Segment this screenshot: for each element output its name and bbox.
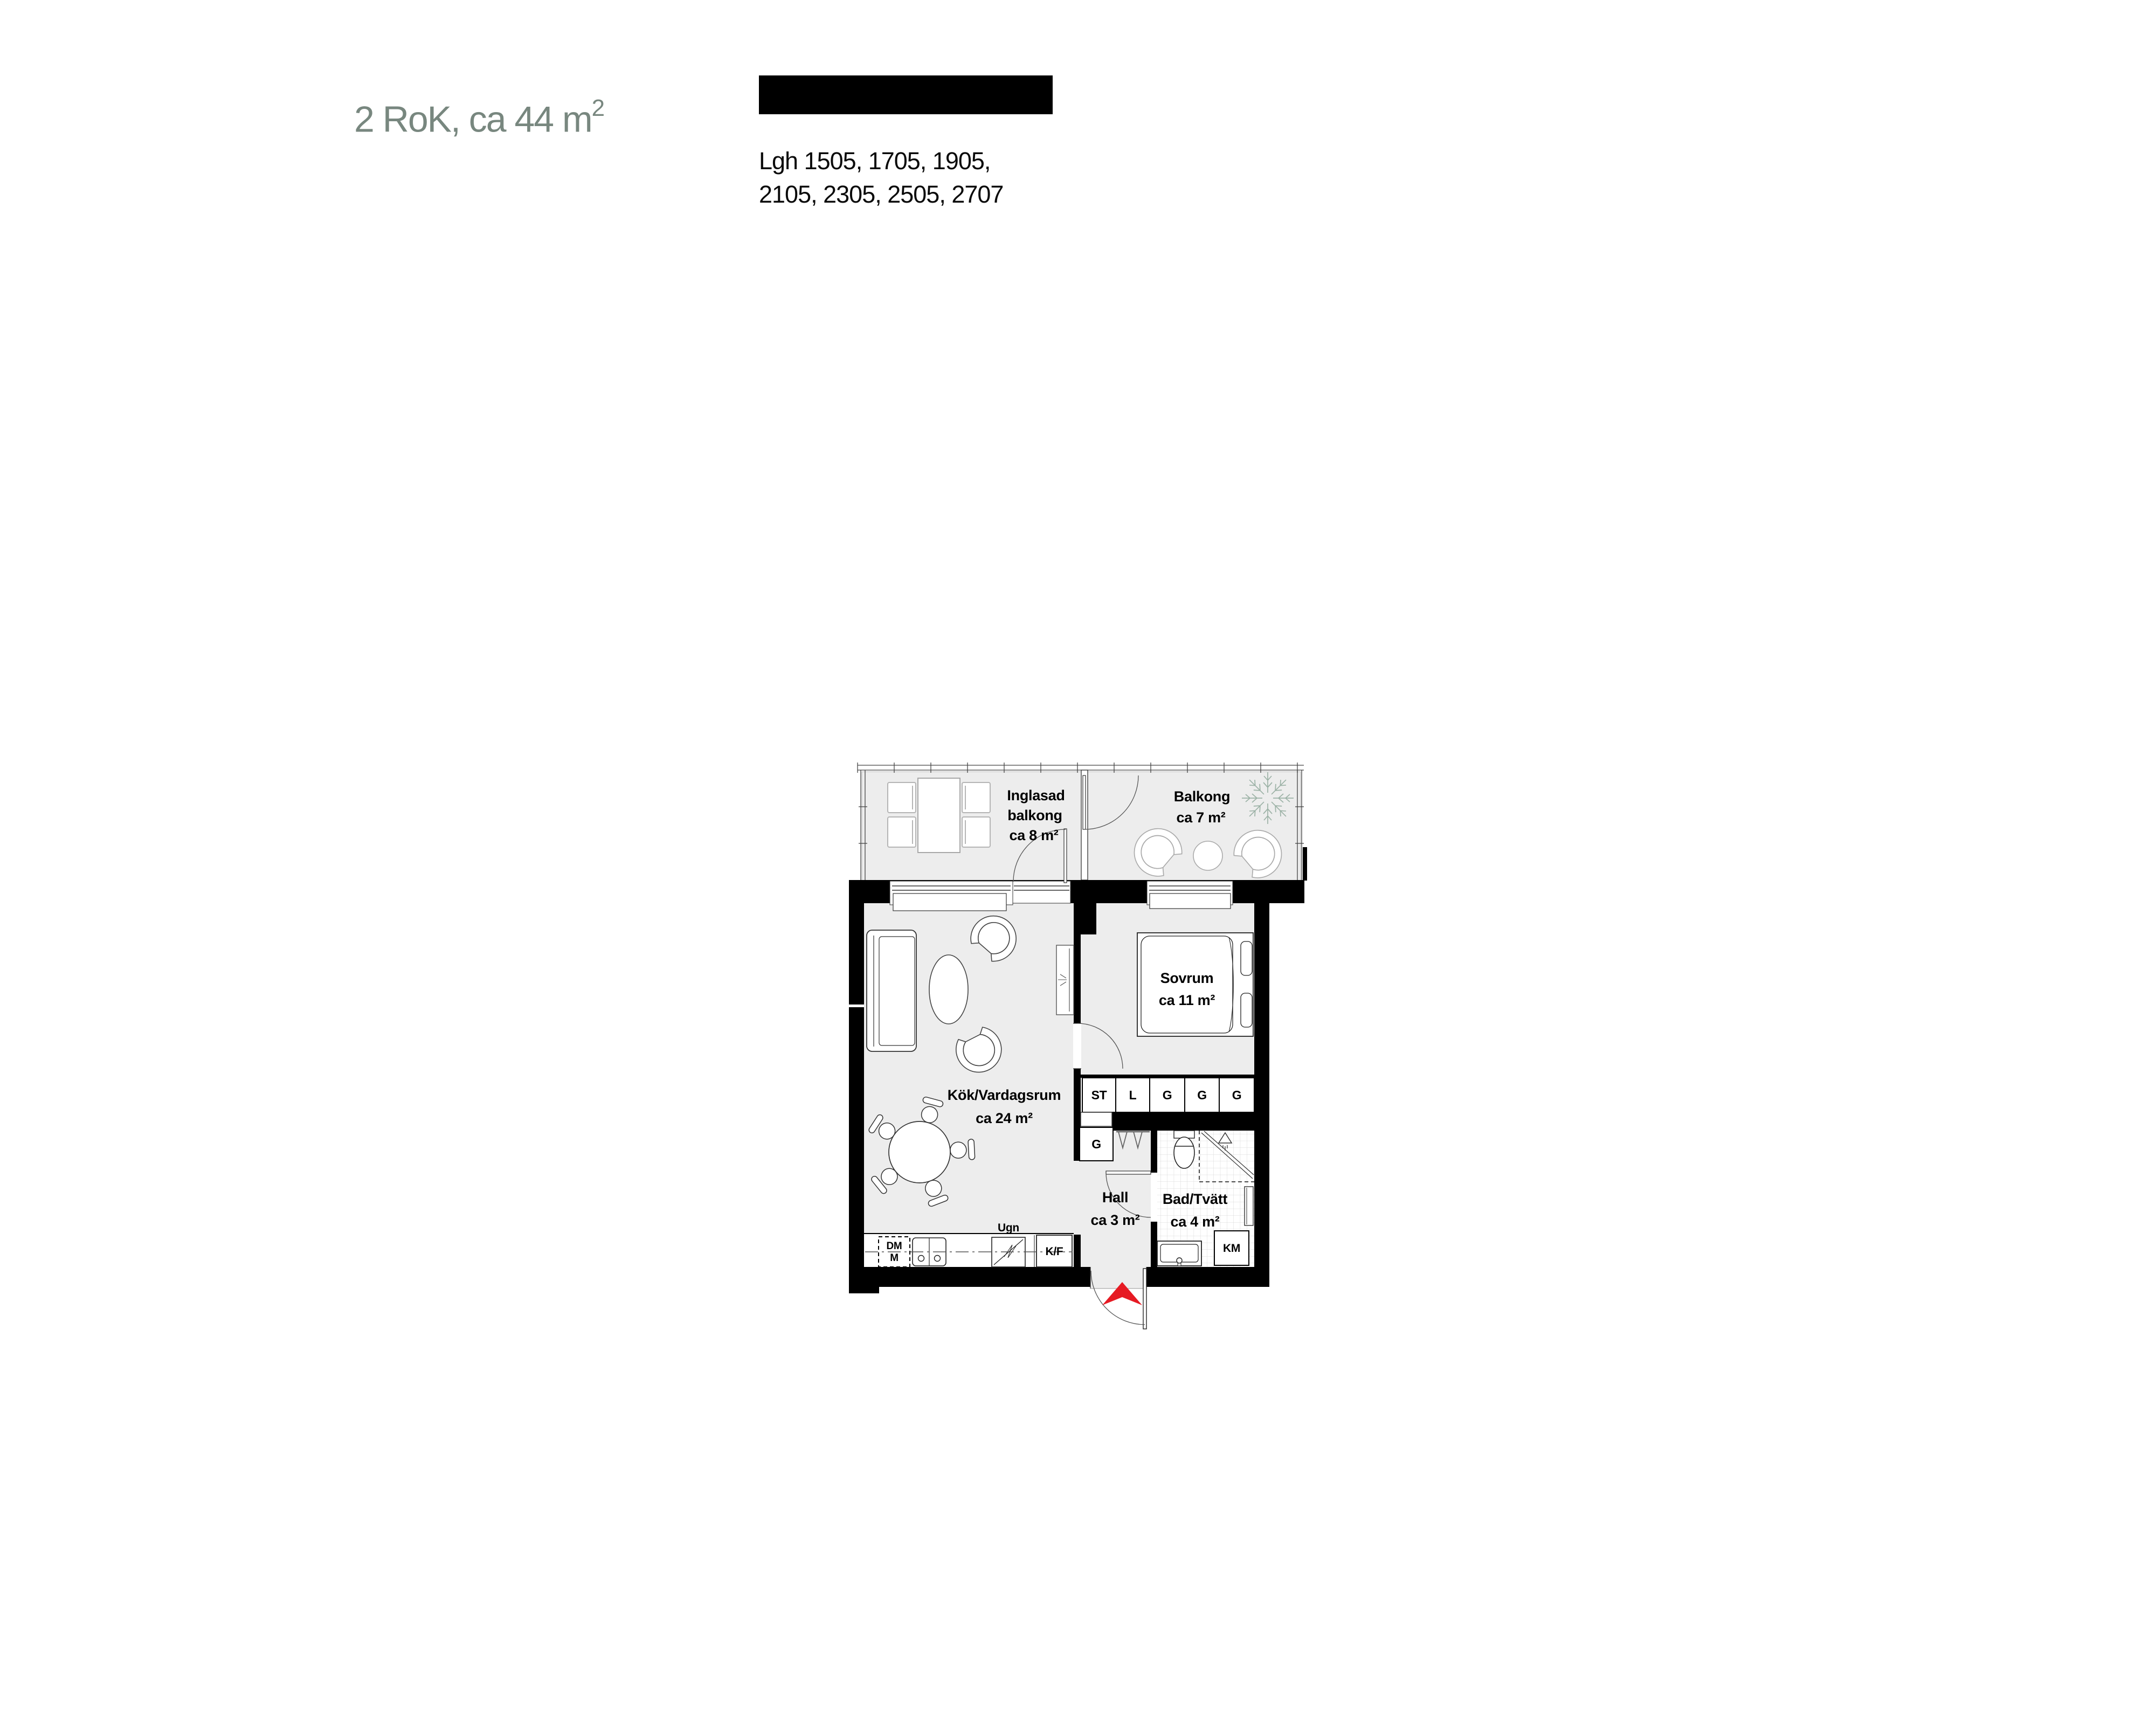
label-bad-1: Bad/Tvätt xyxy=(1163,1191,1228,1207)
label-balkong-1: Balkong xyxy=(1174,788,1230,805)
toilet xyxy=(1174,1131,1194,1168)
label-hall-1: Hall xyxy=(1102,1189,1128,1206)
label-kok-2: ca 24 m² xyxy=(976,1110,1033,1126)
apartment-numbers-line2: 2105, 2305, 2505, 2707 xyxy=(759,178,1003,211)
coffee-table xyxy=(929,955,968,1024)
label-closet-g1: G xyxy=(1163,1088,1172,1102)
wall-joint xyxy=(849,1005,864,1007)
label-inglasad-1: Inglasad xyxy=(1007,787,1065,803)
sofa xyxy=(867,930,916,1051)
title-superscript: 2 xyxy=(592,95,605,121)
label-km: KM xyxy=(1223,1242,1240,1255)
bathroom-cabinet xyxy=(1245,1187,1253,1225)
label-kok-1: Kök/Vardagsrum xyxy=(948,1087,1061,1103)
bathroom-sink xyxy=(1157,1241,1201,1266)
label-closet-st: ST xyxy=(1091,1088,1107,1102)
label-closet-g3: G xyxy=(1232,1088,1242,1102)
bedroom-window xyxy=(1147,881,1233,909)
label-closet-l: L xyxy=(1129,1088,1137,1102)
label-sovrum-2: ca 11 m² xyxy=(1159,992,1215,1008)
living-room-window xyxy=(890,881,1013,911)
label-inglasad-2: balkong xyxy=(1007,807,1062,823)
label-hall-2: ca 3 m² xyxy=(1091,1212,1140,1228)
label-balkong-2: ca 7 m² xyxy=(1177,809,1226,826)
label-closet-g2: G xyxy=(1197,1088,1207,1102)
hall-shelf xyxy=(1081,1112,1112,1126)
label-m: M xyxy=(890,1252,899,1264)
label-ugn: Ugn xyxy=(998,1222,1019,1234)
floorplan-page: 2 RoK, ca 44 m2 Lgh 1505, 1705, 1905, 21… xyxy=(0,0,2156,1718)
label-sovrum-1: Sovrum xyxy=(1160,970,1214,986)
page-title: 2 RoK, ca 44 m2 xyxy=(354,98,605,141)
floorplan-drawing: Inglasad balkong ca 8 m² Balkong ca 7 m²… xyxy=(849,747,1307,1372)
header-rule-bar xyxy=(759,75,1053,114)
tv-unit xyxy=(1056,945,1074,1015)
label-bad-2: ca 4 m² xyxy=(1171,1214,1220,1230)
apartment-numbers-line1: Lgh 1505, 1705, 1905, xyxy=(759,144,1003,178)
label-hall-g: G xyxy=(1091,1137,1101,1151)
label-dm: DM xyxy=(887,1241,902,1252)
label-kf: K/F xyxy=(1046,1245,1063,1258)
apartment-numbers: Lgh 1505, 1705, 1905, 2105, 2305, 2505, … xyxy=(759,144,1003,211)
label-inglasad-3: ca 8 m² xyxy=(1010,827,1059,843)
